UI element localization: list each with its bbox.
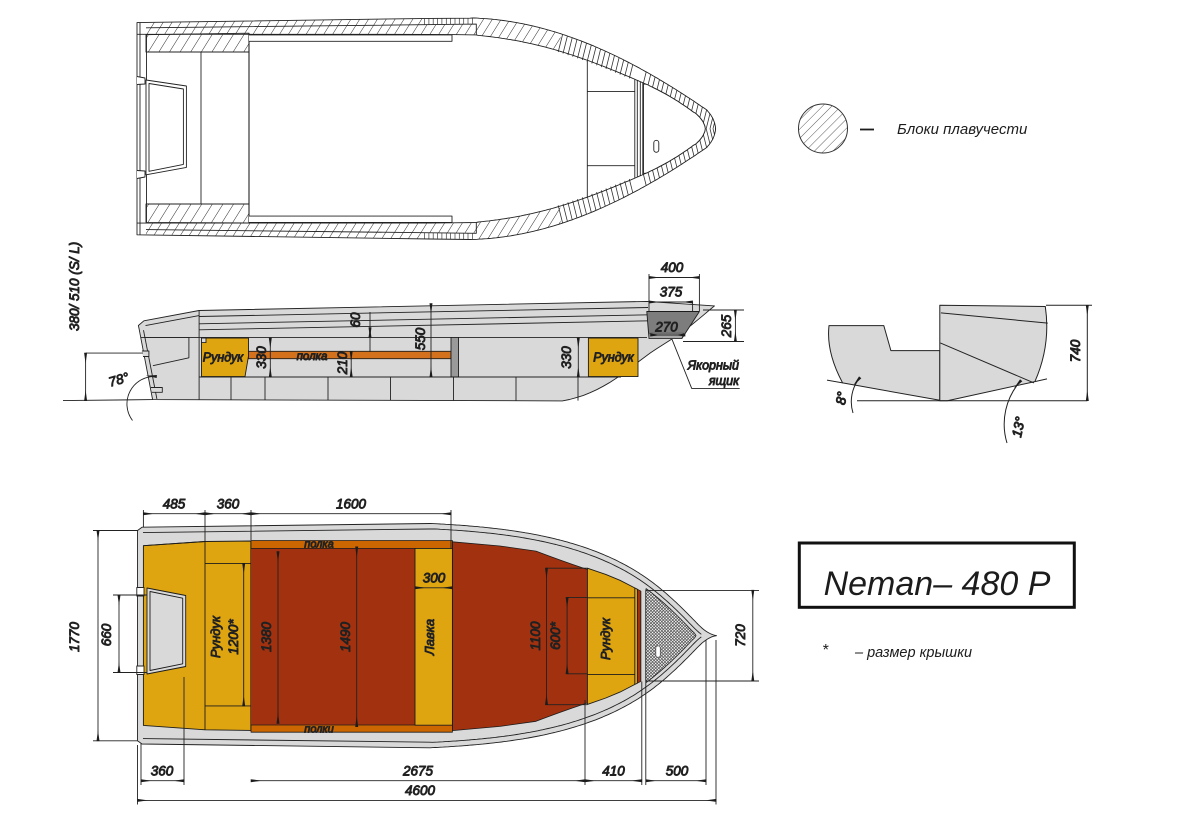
svg-text:550: 550 (413, 327, 428, 350)
svg-text:500: 500 (666, 764, 689, 779)
svg-text:Блоки плавучести: Блоки плавучести (897, 121, 1028, 138)
svg-text:410: 410 (602, 764, 625, 779)
svg-text:78°: 78° (107, 369, 131, 389)
svg-text:Рундук: Рундук (593, 351, 634, 365)
svg-text:ящик: ящик (708, 374, 740, 388)
svg-text:265: 265 (719, 314, 734, 338)
svg-text:Neman– 480 P: Neman– 480 P (824, 565, 1051, 603)
svg-text:Якорный: Якорный (687, 359, 739, 373)
svg-text:400: 400 (661, 260, 684, 275)
svg-text:Рундук: Рундук (598, 617, 613, 660)
svg-text:375: 375 (660, 285, 683, 300)
svg-text:1380: 1380 (259, 621, 274, 652)
svg-text:8°: 8° (833, 390, 850, 406)
svg-text:4600: 4600 (405, 783, 436, 798)
svg-text:1100: 1100 (528, 621, 543, 651)
svg-text:Рундук: Рундук (203, 351, 244, 365)
svg-text:360: 360 (217, 497, 240, 512)
svg-text:485: 485 (163, 497, 186, 512)
svg-text:60: 60 (348, 312, 363, 328)
svg-text:Лавка: Лавка (422, 619, 437, 656)
svg-text:Рундук: Рундук (208, 615, 223, 658)
svg-text:330: 330 (559, 346, 574, 369)
svg-text:210: 210 (335, 351, 350, 375)
svg-text:13°: 13° (1009, 415, 1028, 439)
svg-text:720: 720 (733, 624, 748, 647)
svg-text:1770: 1770 (67, 621, 82, 652)
svg-text:300: 300 (423, 571, 446, 586)
svg-text:270: 270 (654, 320, 678, 335)
svg-text:660: 660 (99, 623, 114, 646)
svg-text:600*: 600* (548, 621, 563, 650)
svg-text:полка: полка (304, 539, 333, 551)
svg-text:1600: 1600 (336, 497, 367, 512)
svg-text:1200*: 1200* (226, 619, 241, 655)
svg-text:360: 360 (151, 764, 174, 779)
svg-text:2675: 2675 (402, 764, 434, 779)
svg-text:*: * (822, 642, 829, 659)
svg-text:380/ 510 (S/ L): 380/ 510 (S/ L) (67, 242, 82, 331)
svg-text:полки: полки (304, 724, 333, 736)
svg-text:330: 330 (254, 346, 269, 369)
svg-text:1490: 1490 (338, 621, 353, 652)
svg-text:полка: полка (297, 351, 328, 363)
svg-text:– размер крышки: – размер крышки (854, 645, 972, 661)
svg-text:740: 740 (1068, 339, 1083, 362)
